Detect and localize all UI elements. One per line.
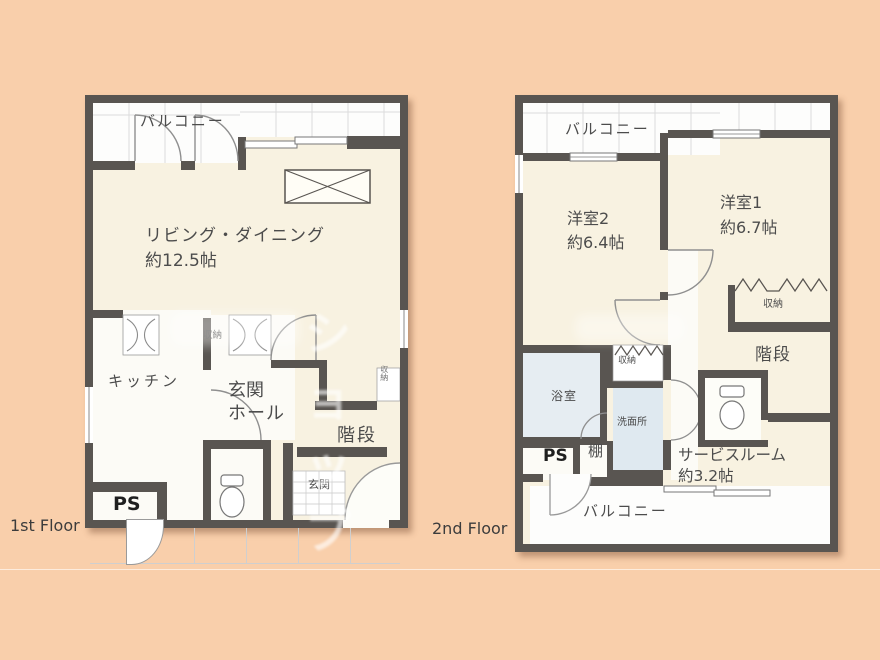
washroom-floor (613, 388, 663, 470)
f2-room2-label: 洋室2 (567, 210, 609, 228)
floor-plan-1f: バルコニー リビング・ダイニング 約12.5帖 収納 収納 キッチン 玄関 ホー… (85, 95, 408, 528)
floor-plan-2f: バルコニー 洋室2 約6.4帖 洋室1 約6.7帖 収納 収納 浴室 洗面所 階… (515, 95, 838, 552)
f2-balcony-bottom-label: バルコニー (583, 503, 668, 520)
porch-grid-line (246, 528, 247, 563)
f2-ps-label: PS (543, 447, 568, 466)
f2-service-size-label: 約3.2帖 (678, 468, 734, 485)
f2-stairs-label: 階段 (755, 346, 791, 365)
floor-plan-2f-drawing (515, 95, 838, 552)
f1-closet-label: 収納 (203, 331, 222, 341)
porch-grid-line (350, 528, 351, 563)
f1-living-label: リビング・ダイニング (145, 227, 325, 246)
f2-room2-size-label: 約6.4帖 (567, 234, 624, 252)
f2-balcony-top-label: バルコニー (565, 121, 650, 138)
f2-room1-size-label: 約6.7帖 (720, 219, 777, 237)
f2-wall-windows (515, 155, 523, 193)
floor2-title: 2nd Floor (432, 519, 507, 538)
f2-service-room-label: サービスルーム (678, 447, 786, 464)
porch-grid-line (298, 528, 299, 563)
f1-living-size-label: 約12.5帖 (145, 252, 217, 271)
meter-box-icon (285, 170, 370, 203)
background-divider-line (0, 569, 880, 570)
f2-room1-closet-label: 収納 (763, 299, 783, 310)
f1-interior (93, 103, 400, 520)
f2-room1-label: 洋室1 (720, 194, 762, 212)
f1-kitchen-label: キッチン (108, 373, 180, 390)
f1-ps-label: PS (113, 494, 141, 515)
f1-genkan-label: 玄関 (293, 479, 345, 491)
floor-plan-1f-drawing (85, 95, 408, 528)
toilet-icon (220, 475, 244, 517)
f1-balcony-label: バルコニー (140, 113, 225, 130)
f2-shelf-label: 棚 (588, 443, 603, 460)
f1-hall-label-1: 玄関 (228, 381, 264, 401)
f1-stairs-label: 階段 (337, 426, 377, 446)
porch-door-leaf[interactable] (126, 519, 164, 565)
f2-interior (523, 103, 830, 544)
toilet-icon (720, 386, 744, 429)
f1-hall-label-2: ホール (228, 404, 285, 424)
f2-bath-label: 浴室 (551, 390, 577, 403)
porch-grid-line (194, 528, 195, 563)
floor1-title: 1st Floor (10, 516, 80, 535)
f2-washroom-label: 洗面所 (617, 417, 647, 428)
f2-mid-closet-label: 収納 (618, 357, 636, 367)
f1-side-closet-label: 収納 (379, 365, 388, 381)
